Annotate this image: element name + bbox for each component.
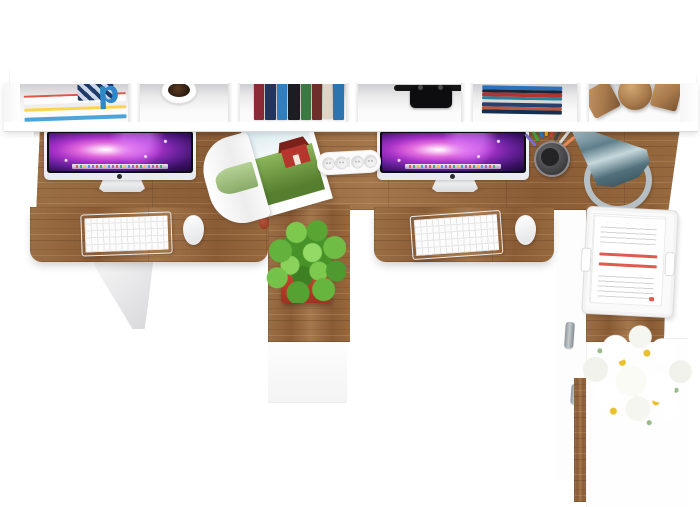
apple-logo-icon (450, 174, 455, 179)
paper-text-lines (597, 272, 654, 299)
imac-right-wallpaper (382, 133, 524, 171)
dock-icons (76, 165, 165, 168)
imac-left (44, 128, 196, 180)
headphones (410, 87, 452, 108)
shelf-divider (461, 83, 473, 123)
drawer-handle (564, 322, 575, 349)
keyboard-right (410, 210, 504, 260)
paper-red-line (599, 252, 657, 258)
headphones-knob (438, 85, 443, 90)
shelf-divider (128, 83, 140, 123)
imac-right-dock (405, 164, 502, 169)
cubby-headphones (358, 84, 461, 122)
power-strip (316, 149, 381, 175)
book-spine (312, 84, 322, 120)
book-stack (473, 84, 577, 122)
coffee-mug (161, 84, 197, 104)
cubby-wood-decor (589, 84, 680, 122)
center-pedestal-front (268, 342, 347, 403)
cubby-books (240, 84, 346, 122)
imac-left-dock (72, 164, 169, 169)
book-spine (277, 84, 287, 120)
book-spine (254, 84, 264, 120)
barn-door (293, 154, 302, 165)
wooden-cube (650, 84, 680, 112)
power-socket (364, 155, 378, 169)
shelf-right-wall (680, 83, 698, 123)
wall-shelf: p (4, 83, 698, 131)
magazine-cover-letter: p (97, 84, 120, 109)
pen-cup (534, 141, 570, 177)
paper-text-lines (600, 222, 657, 245)
pen-cup-interior (541, 148, 559, 166)
imac-right (377, 128, 529, 180)
paper-red-line (599, 262, 657, 268)
imac-right-screen (380, 131, 526, 173)
paper-sheet-top (590, 215, 667, 307)
stacked-book (482, 109, 562, 114)
shelf-divider (346, 83, 358, 123)
shelf-left-wall (4, 83, 20, 123)
plant-leaves (266, 219, 346, 303)
coffee (168, 84, 190, 97)
paper-red-mark (649, 297, 654, 301)
keyboard-left (80, 211, 172, 256)
flower-bouquet (582, 316, 694, 432)
book-spine (323, 84, 332, 119)
wall-panel (9, 0, 697, 83)
cubby-magazines: p (20, 84, 128, 122)
book-spine (301, 84, 311, 120)
book-spine (333, 84, 344, 120)
cubby-mug (140, 84, 228, 122)
cubby-stacked-books (473, 84, 577, 122)
paper-tray (582, 207, 677, 318)
dock-icons (409, 165, 498, 168)
shelf-front-edge (4, 122, 698, 132)
wooden-sphere (618, 84, 652, 110)
book-spine (265, 84, 276, 120)
apple-logo-icon (117, 174, 122, 179)
magazine-stack: p (20, 84, 128, 122)
left-page-photo (213, 161, 259, 197)
shelf-divider (228, 83, 240, 123)
wooden-cube (589, 84, 621, 119)
power-socket (351, 155, 365, 169)
headphones-knob (418, 85, 423, 90)
tray-handle (664, 252, 675, 276)
imac-left-screen (47, 131, 193, 173)
power-socket (322, 157, 336, 171)
book-spine (288, 84, 300, 120)
imac-left-wallpaper (49, 133, 191, 171)
desk-top-view-render: p (0, 0, 700, 507)
desk-leg (93, 261, 153, 329)
shelf-divider (577, 83, 589, 123)
power-strip-switch (347, 157, 351, 167)
